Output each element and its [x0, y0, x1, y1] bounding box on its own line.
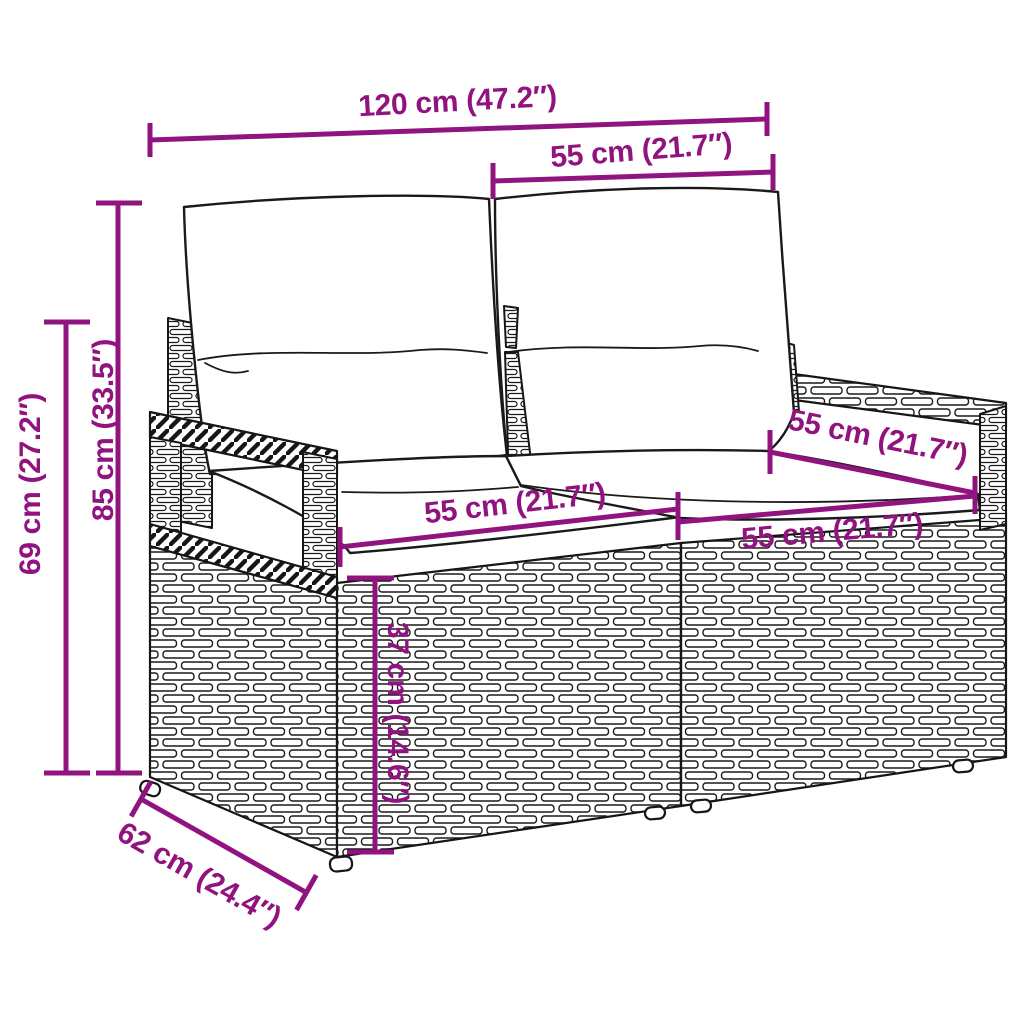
left-arm-end-cap	[150, 437, 181, 532]
product-dimension-diagram: 120 cm (47.2″) 55 cm (21.7″) 85 cm (33.5…	[0, 0, 1024, 1024]
base-left-side-face	[150, 546, 337, 857]
back-gap-weave-upper	[504, 306, 518, 348]
dim-frame-height: 69 cm (27.2″)	[14, 322, 90, 773]
dim-frame-height-label: 69 cm (27.2″)	[14, 393, 47, 575]
dim-back-section-width-label: 55 cm (21.7″)	[549, 127, 733, 174]
right-arm-front-post	[980, 406, 1006, 530]
foot-middle-left	[645, 806, 666, 820]
dim-total-width-label: 120 cm (47.2″)	[357, 80, 557, 123]
back-cushion-right	[495, 188, 794, 461]
dim-seat-height-label: 37 cm (14.6″)	[381, 622, 414, 804]
foot-middle-right	[691, 799, 712, 813]
foot-front-left	[329, 856, 352, 872]
dim-total-height-label: 85 cm (33.5″)	[87, 339, 120, 521]
foot-front-right	[953, 759, 974, 773]
dim-line	[493, 172, 773, 181]
dim-total-height: 85 cm (33.5″)	[87, 203, 142, 773]
dim-tick	[297, 875, 317, 910]
diagram-canvas: 120 cm (47.2″) 55 cm (21.7″) 85 cm (33.5…	[0, 0, 1024, 1024]
